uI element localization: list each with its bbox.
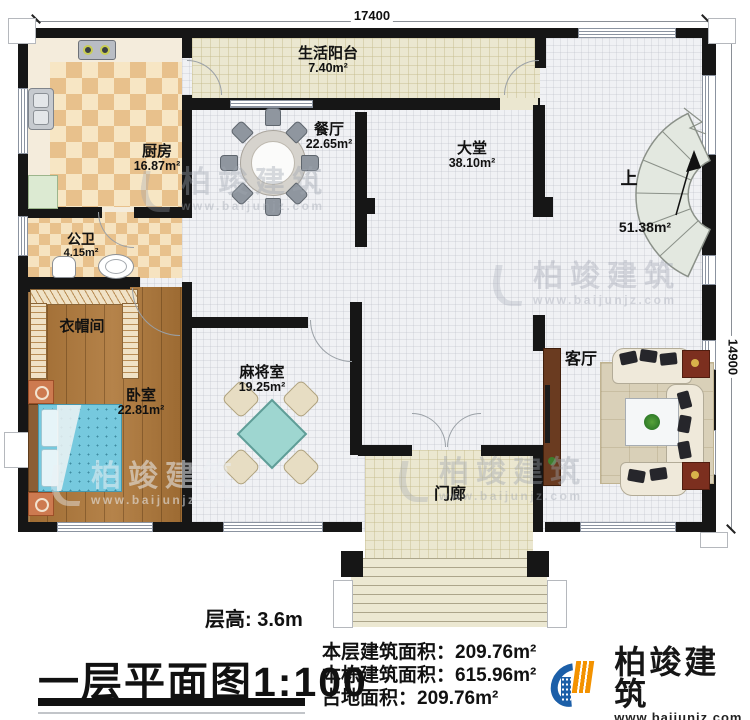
stairs bbox=[618, 100, 730, 290]
porch-pillar-right bbox=[527, 551, 549, 577]
brand-logo: 柏竣建筑 www.baijunjz.com bbox=[552, 646, 750, 720]
window-kitchen bbox=[18, 88, 28, 154]
room-label-living: 客厅 bbox=[565, 352, 597, 369]
dimension-line-right bbox=[731, 30, 732, 530]
stat-row: 本栋建筑面积：615.96m² bbox=[322, 664, 536, 687]
wall-living-west-lower bbox=[533, 445, 543, 532]
stairwell-area-label: 51.38m² bbox=[619, 220, 671, 235]
window-top bbox=[578, 28, 676, 38]
floor-kitchen bbox=[50, 62, 182, 207]
room-label-mahjong: 麻将室19.25m² bbox=[239, 365, 286, 395]
porch-rail-left bbox=[333, 580, 353, 628]
side-table bbox=[682, 350, 710, 378]
brand-name: 柏竣建筑 bbox=[614, 646, 750, 710]
floor-plan: 生活阳台7.40m² 厨房16.87m² 餐厅22.65m² 大堂38.10m²… bbox=[0, 0, 750, 720]
wall-kitchen-right bbox=[182, 95, 192, 212]
floor-height-label: 层高: 3.6m bbox=[205, 603, 303, 632]
window-living-bottom bbox=[580, 522, 676, 532]
dimension-extension-mark bbox=[4, 432, 30, 468]
room-label-kitchen: 厨房16.87m² bbox=[134, 144, 181, 174]
brand-url: www.baijunjz.com bbox=[614, 710, 750, 720]
wall-porch-top-left bbox=[358, 445, 412, 456]
dimension-top-label: 17400 bbox=[351, 8, 393, 23]
brand-logo-icon bbox=[552, 657, 606, 715]
room-label-balcony: 生活阳台7.40m² bbox=[298, 46, 358, 76]
wall-kitchen-bottom-right bbox=[134, 207, 192, 218]
floor-porch bbox=[365, 450, 533, 560]
window-balcony bbox=[230, 100, 313, 108]
stove-burner bbox=[100, 45, 110, 55]
dimension-extension-mark bbox=[8, 18, 36, 44]
dining-chair bbox=[265, 198, 281, 216]
room-label-dining: 餐厅22.65m² bbox=[306, 122, 353, 152]
room-label-bathroom: 公卫4.15m² bbox=[64, 232, 99, 259]
window-bedroom bbox=[57, 522, 153, 532]
bed-blanket-fold bbox=[57, 405, 101, 491]
toilet bbox=[52, 256, 76, 278]
wall-hall-left-foot bbox=[367, 198, 375, 214]
tv bbox=[545, 385, 550, 443]
room-label-hall: 大堂38.10m² bbox=[449, 141, 496, 171]
wall-porch-top-right bbox=[481, 445, 545, 456]
stove bbox=[78, 40, 116, 60]
stat-row: 占地面积：209.76m² bbox=[322, 687, 536, 710]
wall-hall-left bbox=[355, 112, 367, 247]
title-underline-thin bbox=[38, 712, 305, 714]
dining-chair bbox=[265, 108, 281, 126]
wardrobe-left bbox=[30, 303, 47, 379]
tv-cabinet bbox=[543, 348, 561, 486]
porch-rail-right bbox=[547, 580, 567, 628]
nightstand bbox=[28, 380, 54, 404]
window-mahjong bbox=[223, 522, 323, 532]
porch-pillar-left bbox=[341, 551, 363, 577]
wall-stairwell-west bbox=[533, 105, 545, 217]
side-table bbox=[682, 462, 710, 490]
wall-kitchen-right-upper bbox=[182, 38, 192, 58]
room-label-porch: 门廊 bbox=[434, 487, 466, 504]
room-label-cloakroom: 衣帽间 bbox=[59, 319, 104, 335]
wash-basin bbox=[98, 254, 134, 279]
dimension-extension-mark bbox=[700, 532, 728, 548]
plant bbox=[548, 457, 556, 465]
dimension-extension-mark bbox=[708, 18, 736, 44]
plant bbox=[644, 414, 660, 430]
bed bbox=[38, 404, 122, 492]
window-bathroom bbox=[18, 216, 28, 256]
dining-chair bbox=[220, 155, 238, 171]
pillow bbox=[41, 449, 59, 487]
stairs-up-label: 上 bbox=[621, 170, 638, 188]
dining-chair bbox=[301, 155, 319, 171]
kitchen-sink bbox=[28, 88, 54, 130]
room-label-bedroom: 卧室22.81m² bbox=[118, 388, 165, 418]
wall-bedroom-right bbox=[182, 282, 192, 532]
kitchen-counter-board bbox=[28, 175, 58, 209]
stat-row: 本层建筑面积：209.76m² bbox=[322, 641, 536, 664]
floor-balcony bbox=[192, 38, 540, 100]
stove-burner bbox=[83, 45, 93, 55]
wall-living-west-upper bbox=[533, 315, 545, 351]
wall-mahjong-top bbox=[192, 317, 308, 328]
area-stats: 本层建筑面积：209.76m² 本栋建筑面积：615.96m² 占地面积：209… bbox=[322, 641, 536, 710]
wall-stairwell-west-foot bbox=[545, 197, 553, 217]
coffee-table bbox=[625, 398, 679, 446]
porch-steps bbox=[351, 558, 547, 627]
pillow bbox=[41, 409, 59, 447]
nightstand bbox=[28, 492, 54, 516]
wardrobe-right bbox=[122, 303, 139, 379]
dimension-right-label: 14900 bbox=[726, 336, 741, 378]
title-underline bbox=[38, 698, 305, 706]
